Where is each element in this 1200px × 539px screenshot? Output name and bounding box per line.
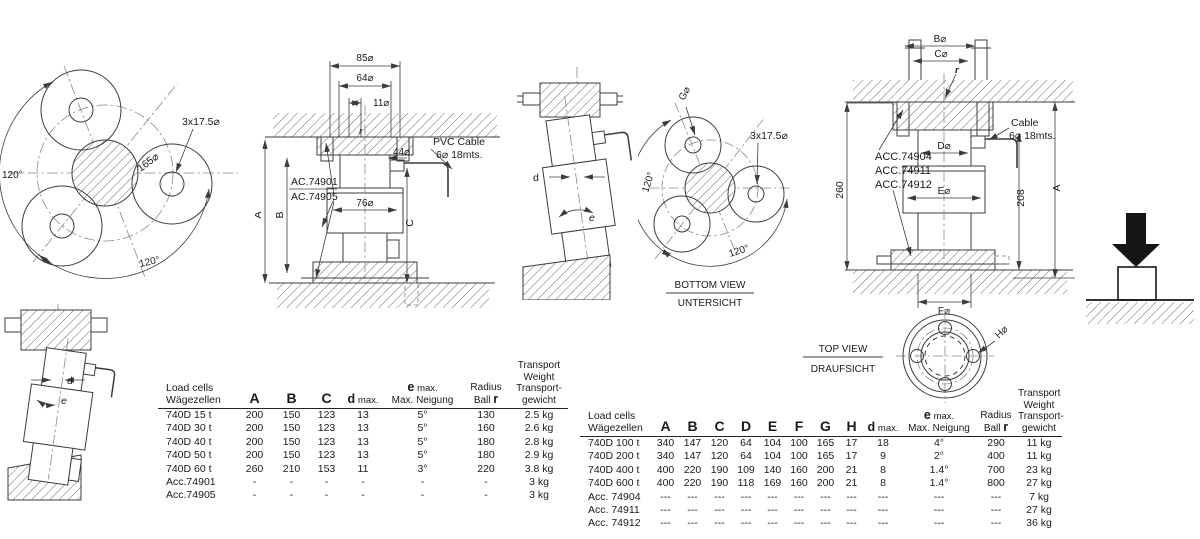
top-mount <box>517 83 623 117</box>
acc-label-2: AC.74905 <box>291 191 338 203</box>
dim-208-label: 208 <box>1015 189 1027 207</box>
cell-c: - <box>310 476 343 489</box>
col-header-f: F <box>786 388 812 437</box>
header-line: Load cells <box>166 382 234 394</box>
table-row: 740D 200 t 340 147 120 64 104 100 165 17… <box>580 450 1062 463</box>
cell-g: 165 <box>812 450 839 463</box>
cell-radius: 400 <box>976 450 1016 463</box>
ceiling-hatch <box>853 80 1073 102</box>
cell-weight: 27 kg <box>1016 504 1062 517</box>
col-header-d: D <box>733 388 759 437</box>
cell-e: 104 <box>759 450 786 463</box>
angle-left-label: 120° <box>2 170 23 181</box>
cell-c: --- <box>706 517 733 530</box>
acc-label-1: AC.74901 <box>291 176 338 188</box>
cell-d-max: 13 <box>343 449 383 462</box>
cable-spec: 6⌀ 18mts. <box>436 149 483 161</box>
cell-radius: --- <box>976 517 1016 530</box>
cell-e-max: 5° <box>383 409 462 423</box>
dim-260-label: 260 <box>834 181 846 199</box>
table-row: Acc. 74904 --- --- --- --- --- --- --- -… <box>580 491 1062 504</box>
cell-e-max: --- <box>902 504 976 517</box>
cell-e-max: --- <box>902 491 976 504</box>
cell-model: Acc. 74912 <box>580 517 652 530</box>
acc-label-1: ACC.74904 <box>875 151 932 163</box>
cell-e: 140 <box>759 464 786 477</box>
dim-b-label: B <box>274 211 286 218</box>
holes-label: 3x17.5⌀ <box>750 130 789 142</box>
cell-d: --- <box>733 517 759 530</box>
cell-b: --- <box>679 517 706 530</box>
dim-85-label: 85⌀ <box>356 53 373 64</box>
cell-f: --- <box>786 504 812 517</box>
dim-c-label: C⌀ <box>934 49 947 60</box>
cell-model: 740D 400 t <box>580 464 652 477</box>
cell-c: 190 <box>706 464 733 477</box>
cell-a: 200 <box>236 422 273 435</box>
cell-c: 123 <box>310 422 343 435</box>
cable-spec: 6⌀ 18mts. <box>1009 130 1056 142</box>
cell-a: 400 <box>652 477 679 490</box>
cell-d: 64 <box>733 437 759 451</box>
cell-weight: 2.6 kg <box>510 422 568 435</box>
cell-weight: 2.9 kg <box>510 449 568 462</box>
table-row: 740D 100 t 340 147 120 64 104 100 165 17… <box>580 437 1062 451</box>
ground-hatch <box>1086 302 1194 324</box>
cell-d-max: 8 <box>864 464 902 477</box>
dim-d-label: D⌀ <box>937 141 950 152</box>
col-header-weight: Transport Weight Transport- gewicht <box>510 360 568 409</box>
cell-weight: 23 kg <box>1016 464 1062 477</box>
hole-circles <box>22 70 212 266</box>
cell-e: 169 <box>759 477 786 490</box>
load-direction-drawing <box>1080 203 1200 328</box>
cell-e: --- <box>759 491 786 504</box>
header-line: Wägezellen <box>166 394 234 406</box>
tilted-cell-drawing-mid: d e <box>515 55 650 300</box>
bolt-circle-label: 165⌀ <box>135 150 162 174</box>
cell-d: 109 <box>733 464 759 477</box>
cell-weight: 11 kg <box>1016 450 1062 463</box>
e-label: e <box>589 212 595 224</box>
cell-g: 200 <box>812 464 839 477</box>
table-header-left: Load cells Wägezellen A B C d max. e max… <box>158 360 568 409</box>
cell-h: --- <box>839 517 864 530</box>
col-header-b: B <box>273 360 310 409</box>
cell-a: --- <box>652 504 679 517</box>
cell-model: 740D 200 t <box>580 450 652 463</box>
cell-f: 100 <box>786 450 812 463</box>
cell-b: 220 <box>679 464 706 477</box>
tilted-body <box>18 334 118 489</box>
cell-d-max: --- <box>864 491 902 504</box>
cell-d-max: 18 <box>864 437 902 451</box>
cable-label: Cable <box>1011 117 1039 129</box>
dim-e-label: E⌀ <box>938 186 951 197</box>
dim-64-label: 64⌀ <box>356 73 373 84</box>
cell-c: 153 <box>310 463 343 476</box>
top-view-title-de: DRAUFSICHT <box>811 364 875 375</box>
cell-d: --- <box>733 504 759 517</box>
cell-d-max: - <box>343 476 383 489</box>
anchor-bolt-dashed <box>995 256 1009 264</box>
cell-radius: 180 <box>462 449 510 462</box>
cell-a: --- <box>652 491 679 504</box>
cell-c: 123 <box>310 436 343 449</box>
angle-bottom-label: 120° <box>138 255 161 270</box>
cell-d-max: 13 <box>343 436 383 449</box>
cell-radius: 800 <box>976 477 1016 490</box>
cell-h: --- <box>839 504 864 517</box>
d-label: d <box>533 172 539 184</box>
cell-c: 120 <box>706 437 733 451</box>
cable-label: PVC Cable <box>433 136 485 148</box>
angle-left-label: 120° <box>640 171 657 194</box>
cell-weight: 3 kg <box>510 476 568 489</box>
cell-f: 160 <box>786 477 812 490</box>
cell-radius: - <box>462 489 510 502</box>
top-view-title-en: TOP VIEW <box>819 344 868 355</box>
cell-radius: 290 <box>976 437 1016 451</box>
cell-b: 220 <box>679 477 706 490</box>
cell-a: 340 <box>652 437 679 451</box>
table-row: 740D 15 t 200 150 123 13 5° 130 2.5 kg <box>158 409 568 423</box>
bottom-view-drawing-mid: G⌀ 3x17.5⌀ 120° 120° BOTTOM VIEW UNTERSI… <box>638 85 828 320</box>
cell-model: 740D 50 t <box>158 449 236 462</box>
cell-model: Acc.74901 <box>158 476 236 489</box>
load-cell-table-right: Load cells Wägezellen A B C D E F G H d … <box>580 388 1062 531</box>
col-header-d-max: d max. <box>343 360 383 409</box>
dim-76-label: 76⌀ <box>356 198 373 209</box>
table-body-left: 740D 15 t 200 150 123 13 5° 130 2.5 kg 7… <box>158 409 568 503</box>
table-row: 740D 600 t 400 220 190 118 169 160 200 2… <box>580 477 1062 490</box>
col-header-e-max: e max. Max. Neigung <box>383 360 462 409</box>
cell-e-max: 1.4° <box>902 464 976 477</box>
cell-d-max: --- <box>864 504 902 517</box>
cell-weight: 3.8 kg <box>510 463 568 476</box>
cell-e-max: - <box>383 476 462 489</box>
load-arrow-icon <box>1112 213 1160 267</box>
cell-model: 740D 15 t <box>158 409 236 423</box>
cell-d: 118 <box>733 477 759 490</box>
cell-d: --- <box>733 491 759 504</box>
cell-e-max: 1.4° <box>902 477 976 490</box>
g-label: G⌀ <box>677 85 693 102</box>
cell-h: 17 <box>839 437 864 451</box>
ground-hatch <box>277 283 489 308</box>
r-label: r <box>955 65 960 76</box>
base-block <box>523 255 610 300</box>
cell-a: 200 <box>236 436 273 449</box>
cell-e-max: 3° <box>383 463 462 476</box>
header-line: Wägezellen <box>588 422 650 434</box>
cell-b: 147 <box>679 450 706 463</box>
cell-radius: --- <box>976 491 1016 504</box>
col-header-radius: Radius Ball r <box>462 360 510 409</box>
col-header-a: A <box>236 360 273 409</box>
dim-44-label: 44⌀ <box>393 147 410 158</box>
col-header-e: E <box>759 388 786 437</box>
cell-model: 740D 30 t <box>158 422 236 435</box>
cell-model: Acc. 74904 <box>580 491 652 504</box>
ground-hatch <box>853 270 1067 294</box>
cell-e-max: 5° <box>383 449 462 462</box>
tilted-cell-drawing-bottom-left: d e <box>3 298 138 538</box>
cell-a: - <box>236 489 273 502</box>
dim-c-label: C <box>404 219 416 227</box>
angle-bottom-label: 120° <box>728 243 751 260</box>
cell-model: 740D 100 t <box>580 437 652 451</box>
holes-label: 3x17.5⌀ <box>182 116 221 128</box>
table-row: 740D 60 t 260 210 153 11 3° 220 3.8 kg <box>158 463 568 476</box>
cell-radius: 160 <box>462 422 510 435</box>
cell-g: 165 <box>812 437 839 451</box>
cell-c: 123 <box>310 409 343 423</box>
cell-e: --- <box>759 517 786 530</box>
cell-g: --- <box>812 517 839 530</box>
top-mount <box>5 310 107 350</box>
dimension-lines <box>265 61 452 283</box>
cell-g: --- <box>812 491 839 504</box>
cell-e: --- <box>759 504 786 517</box>
bottom-view-drawing-left: 120° 120° 165⌀ 3x17.5⌀ <box>0 15 255 300</box>
cell-b: --- <box>679 491 706 504</box>
table-row: 740D 30 t 200 150 123 13 5° 160 2.6 kg <box>158 422 568 435</box>
e-label: e <box>61 395 67 407</box>
table-row: Acc. 74911 --- --- --- --- --- --- --- -… <box>580 504 1062 517</box>
cell-weight: 7 kg <box>1016 491 1062 504</box>
dim-b-label: B⌀ <box>934 34 947 45</box>
ceiling-hatch <box>273 113 497 137</box>
col-header-g: G <box>812 388 839 437</box>
cell-b: - <box>273 489 310 502</box>
cell-c: --- <box>706 491 733 504</box>
cell-weight: 2.8 kg <box>510 436 568 449</box>
cell-d-max: 9 <box>864 450 902 463</box>
col-header-c: C <box>706 388 733 437</box>
dim-11-label: 11⌀ <box>373 98 389 109</box>
cell-b: 150 <box>273 436 310 449</box>
section-drawing-right: B⌀ C⌀ r D⌀ E⌀ F⌀ Cable 6⌀ 18mts. ACC.749… <box>833 18 1083 318</box>
cell-f: 100 <box>786 437 812 451</box>
acc-label-2: ACC.74911 <box>875 165 931 177</box>
cell-radius: 220 <box>462 463 510 476</box>
table-row: Acc.74905 - - - - - - 3 kg <box>158 489 568 502</box>
cell-b: 150 <box>273 409 310 423</box>
cell-c: --- <box>706 504 733 517</box>
cell-b: 150 <box>273 449 310 462</box>
col-header-e-max: e max. Max. Neigung <box>902 388 976 437</box>
d-label: d <box>67 375 73 387</box>
cell-e-max: 4° <box>902 437 976 451</box>
cell-f: 160 <box>786 464 812 477</box>
cell-b: 147 <box>679 437 706 451</box>
cell-e-max: 5° <box>383 436 462 449</box>
cell-g: 200 <box>812 477 839 490</box>
cell-h: 21 <box>839 464 864 477</box>
bottom-view-title-de: UNTERSICHT <box>678 298 742 309</box>
bottom-view-title-en: BOTTOM VIEW <box>675 280 746 291</box>
cell-b: 150 <box>273 422 310 435</box>
section-drawing-left: 85⌀ 64⌀ 11⌀ 44⌀ 76⌀ A B C r PVC Cable 6⌀… <box>255 45 505 337</box>
header-line: Load cells <box>588 410 650 422</box>
col-header-name: Load cells Wägezellen <box>580 388 652 437</box>
cell-a: 340 <box>652 450 679 463</box>
datasheet-page: 120° 120° 165⌀ 3x17.5⌀ <box>0 0 1200 539</box>
cell-e-max: - <box>383 489 462 502</box>
cell-b: --- <box>679 504 706 517</box>
cell-h: --- <box>839 491 864 504</box>
cell-c: - <box>310 489 343 502</box>
table-row: 740D 40 t 200 150 123 13 5° 180 2.8 kg <box>158 436 568 449</box>
cell-weight: 36 kg <box>1016 517 1062 530</box>
cell-e-max: 5° <box>383 422 462 435</box>
cell-weight: 2.5 kg <box>510 409 568 423</box>
cell-b: - <box>273 476 310 489</box>
cell-d: 64 <box>733 450 759 463</box>
col-header-radius: Radius Ball r <box>976 388 1016 437</box>
cell-b: 210 <box>273 463 310 476</box>
col-header-h: H <box>839 388 864 437</box>
col-header-name: Load cells Wägezellen <box>158 360 236 409</box>
cell-d-max: 13 <box>343 409 383 423</box>
col-header-d-max: d max. <box>864 388 902 437</box>
cell-e-max: 2° <box>902 450 976 463</box>
cell-radius: --- <box>976 504 1016 517</box>
cell-a: 260 <box>236 463 273 476</box>
cell-a: 200 <box>236 409 273 423</box>
cell-d-max: - <box>343 489 383 502</box>
cell-model: 740D 60 t <box>158 463 236 476</box>
cell-a: 400 <box>652 464 679 477</box>
cell-e-max: --- <box>902 517 976 530</box>
cell-a: --- <box>652 517 679 530</box>
cell-radius: 180 <box>462 436 510 449</box>
cell-c: 123 <box>310 449 343 462</box>
cell-radius: 700 <box>976 464 1016 477</box>
cell-model: Acc. 74911 <box>580 504 652 517</box>
cell-weight: 11 kg <box>1016 437 1062 451</box>
cell-c: 120 <box>706 450 733 463</box>
table-header-right: Load cells Wägezellen A B C D E F G H d … <box>580 388 1062 437</box>
cell-model: Acc.74905 <box>158 489 236 502</box>
cell-h: 17 <box>839 450 864 463</box>
cell-e: 104 <box>759 437 786 451</box>
cell-model: 740D 40 t <box>158 436 236 449</box>
cell-f: --- <box>786 517 812 530</box>
cell-d-max: --- <box>864 517 902 530</box>
cell-radius: 130 <box>462 409 510 423</box>
dim-a-label: A <box>255 211 264 218</box>
cell-a: - <box>236 476 273 489</box>
col-header-a: A <box>652 388 679 437</box>
cell-weight: 3 kg <box>510 489 568 502</box>
load-block <box>1118 267 1156 300</box>
cell-weight: 27 kg <box>1016 477 1062 490</box>
cell-model: 740D 600 t <box>580 477 652 490</box>
cell-g: --- <box>812 504 839 517</box>
table-row: 740D 50 t 200 150 123 13 5° 180 2.9 kg <box>158 449 568 462</box>
dim-a-label: A <box>1051 184 1063 191</box>
table-row: 740D 400 t 400 220 190 109 140 160 200 2… <box>580 464 1062 477</box>
col-header-weight: Transport Weight Transport- gewicht <box>1016 388 1062 437</box>
cell-h: 21 <box>839 477 864 490</box>
cell-d-max: 11 <box>343 463 383 476</box>
table-body-right: 740D 100 t 340 147 120 64 104 100 165 17… <box>580 437 1062 531</box>
table-row: Acc.74901 - - - - - - 3 kg <box>158 476 568 489</box>
col-header-b: B <box>679 388 706 437</box>
cell-f: --- <box>786 491 812 504</box>
cell-c: 190 <box>706 477 733 490</box>
cell-d-max: 8 <box>864 477 902 490</box>
cell-d-max: 13 <box>343 422 383 435</box>
cell-radius: - <box>462 476 510 489</box>
load-cell-table-left: Load cells Wägezellen A B C d max. e max… <box>158 360 568 503</box>
cell-a: 200 <box>236 449 273 462</box>
table-row: Acc. 74912 --- --- --- --- --- --- --- -… <box>580 517 1062 530</box>
acc-label-3: ACC.74912 <box>875 179 932 191</box>
col-header-c: C <box>310 360 343 409</box>
h-label: H⌀ <box>993 324 1010 341</box>
